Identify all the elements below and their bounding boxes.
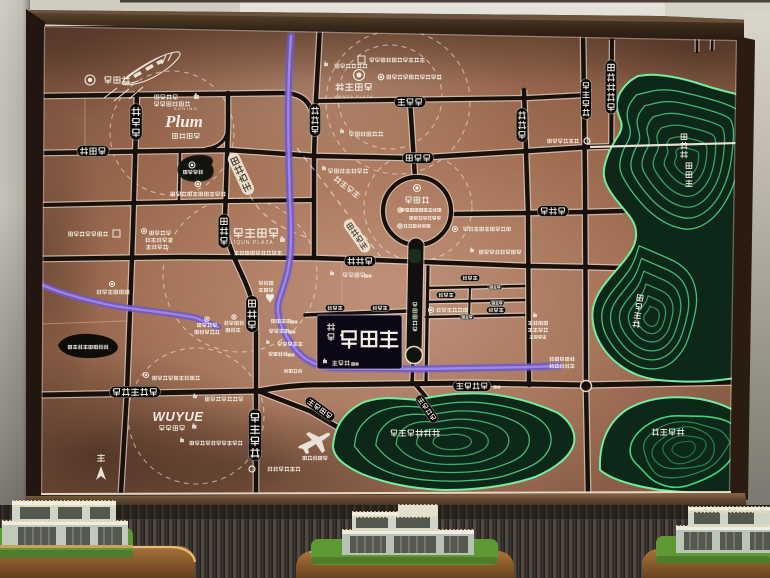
svg-text:WANDA PLAZA: WANDA PLAZA (334, 94, 373, 99)
svg-text:LIQUN PLAZA: LIQUN PLAZA (230, 240, 274, 246)
svg-text:WUYUE: WUYUE (153, 409, 204, 424)
svg-text:Plum: Plum (164, 112, 203, 131)
